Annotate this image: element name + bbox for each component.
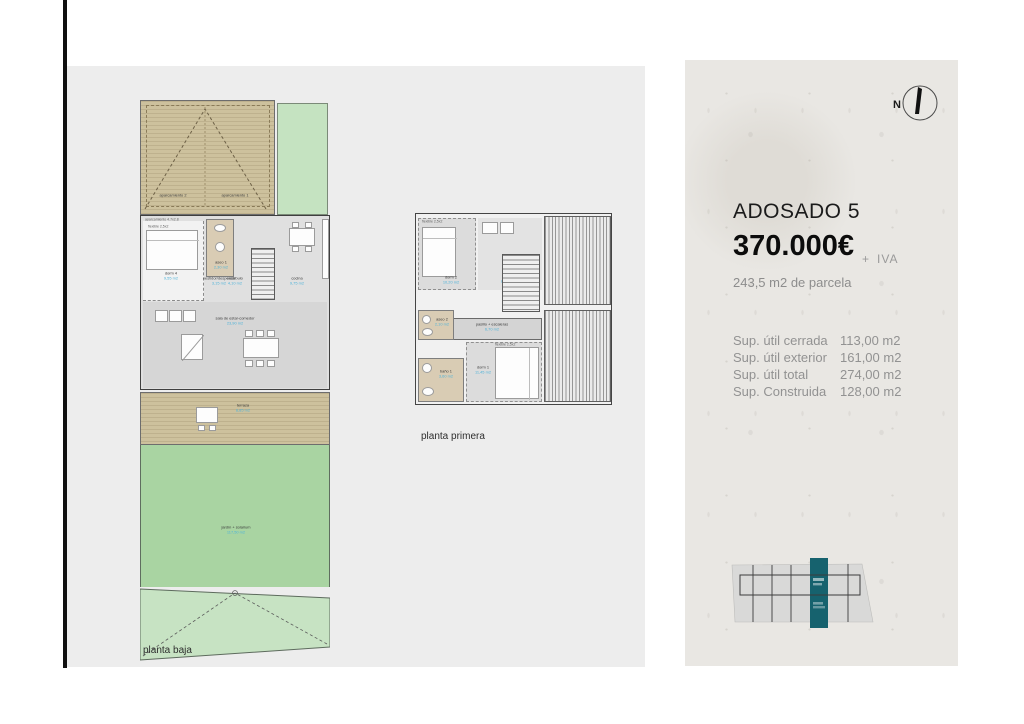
room-label-dorm4: dorm 49,55 m2	[154, 271, 188, 281]
sink	[422, 315, 431, 324]
bed	[146, 230, 198, 270]
room-dorm1: flexible 2,5x2 dorm 111,45 m2	[466, 342, 542, 402]
room-label-aseo2: aseo 22,10 m2	[434, 317, 451, 327]
room-label-aseo1: aseo 12,30 m2	[209, 260, 234, 270]
chair	[292, 222, 299, 228]
side-garden-strip	[277, 103, 328, 215]
room-label-dorm1: dorm 111,45 m2	[471, 365, 496, 375]
room-sala: sala de estar-comedor23,90 m2	[143, 302, 327, 388]
bed	[495, 347, 539, 399]
jardin-area: jardín + solarium117,50 m2	[140, 445, 330, 587]
price-plus-sign: +	[862, 252, 869, 266]
info-panel: N ADOSADO 5 370.000€ + IVA 243,5 m2 de p…	[685, 60, 958, 666]
rug	[181, 334, 203, 360]
pergola-upper	[544, 216, 611, 305]
toilet	[214, 224, 226, 232]
bed	[422, 227, 456, 277]
caption-planta-primera: planta primera	[421, 431, 485, 442]
unit-price: 370.000€	[733, 230, 854, 263]
room-label-vestibulo: vestíbulo4,10 m2	[223, 276, 248, 286]
surface-specs-table: Sup. útil cerrada 113,00 m2 Sup. útil ex…	[733, 333, 943, 401]
room-label-sala: sala de estar-comedor23,90 m2	[213, 316, 258, 326]
parcel-size: 243,5 m2 de parcela	[733, 275, 852, 290]
room-label-pasillo: pasillo + escaleras6,70 m2	[471, 322, 512, 332]
terrace-table	[196, 407, 218, 423]
spec-value: 113,00 m2	[840, 333, 900, 348]
spec-value: 274,00 m2	[840, 367, 901, 382]
bed-pillow-line	[147, 240, 199, 241]
sofa	[155, 310, 168, 322]
dining-table	[243, 338, 279, 358]
bed-annotation: flexible 2,5x2	[148, 225, 168, 229]
room-pasillo: pasillo + escaleras6,70 m2	[444, 318, 542, 340]
brochure-page: { "right_panel": { "title": "ADOSADO 5",…	[0, 0, 1024, 724]
room-label-dorm2: dorm 210,20 m2	[439, 275, 464, 285]
spec-label: Sup. útil exterior	[733, 350, 827, 365]
kitchen-table	[289, 228, 315, 246]
chair	[256, 330, 264, 337]
chair	[245, 360, 253, 367]
bed-pillow-line	[529, 348, 530, 400]
sink	[422, 363, 432, 373]
compass-north-label: N	[893, 99, 901, 111]
room-dorm2: flexible 2,5x2 dorm 210,20 m2	[418, 218, 476, 290]
sofa	[169, 310, 182, 322]
closet	[482, 222, 498, 234]
room-label-cocina: cocina9,75 m2	[282, 276, 311, 286]
chair	[198, 425, 205, 431]
room-label-jardin: jardín + solarium117,50 m2	[214, 525, 259, 535]
toilet	[422, 387, 434, 396]
chair	[209, 425, 216, 431]
sofa	[183, 310, 196, 322]
pergola-lower	[544, 310, 611, 402]
driveway-turning-lines	[141, 101, 276, 216]
room-bano1: baño 13,60 m2	[418, 358, 464, 402]
closet	[500, 222, 514, 234]
chair	[256, 360, 264, 367]
parking-spot-1-label: aparcamiento 1	[220, 193, 249, 198]
spec-row: Sup. útil exterior 161,00 m2	[733, 350, 943, 367]
site-key-plan	[725, 550, 885, 635]
stairs	[251, 248, 275, 300]
spec-row: Sup. Construida 128,00 m2	[733, 384, 943, 401]
rug-diagonal	[182, 335, 204, 361]
spec-label: Sup. Construida	[733, 384, 826, 399]
room-dorm4: flexible 2,5x2	[143, 221, 204, 301]
bed-pillow-line	[423, 238, 457, 239]
room-aseo1: aseo 12,30 m2	[206, 219, 234, 277]
chair	[305, 222, 312, 228]
sink	[215, 242, 225, 252]
stairs	[502, 254, 540, 312]
bed-annotation: flexible 2,5x2	[495, 343, 515, 347]
room-label-bano1: baño 13,60 m2	[436, 369, 455, 379]
compass-icon: N	[885, 78, 941, 130]
house-ground-floor: aparcamiento 4.7x2.8 flexible 2,5x2 dorm…	[140, 215, 330, 390]
chair	[292, 246, 299, 252]
toilet	[422, 328, 433, 336]
spec-value: 128,00 m2	[840, 384, 901, 399]
highlighted-unit	[810, 558, 828, 628]
kitchen-counter	[322, 219, 329, 279]
drawing-canvas: aparcamiento 2 aparcamiento 1 aparcamien…	[67, 66, 645, 667]
chair	[245, 330, 253, 337]
driveway-area: aparcamiento 2 aparcamiento 1	[140, 100, 275, 215]
room-label-terraza: terraza8,85 m2	[230, 403, 257, 413]
unit-title: ADOSADO 5	[733, 200, 860, 224]
parking-spot-2-label: aparcamiento 2	[158, 193, 187, 198]
spec-label: Sup. útil total	[733, 367, 808, 382]
bed-annotation: flexible 2,5x2	[422, 220, 442, 224]
price-tax-label: IVA	[877, 252, 898, 266]
spec-row: Sup. útil total 274,00 m2	[733, 367, 943, 384]
room-aseo2: aseo 22,10 m2	[418, 310, 454, 340]
floorplan-planta-baja: aparcamiento 2 aparcamiento 1 aparcamien…	[140, 100, 330, 660]
caption-planta-baja: planta baja	[143, 645, 192, 656]
chair	[305, 246, 312, 252]
spec-label: Sup. útil cerrada	[733, 333, 828, 348]
floorplan-planta-primera: flexible 2,5x2 dorm 210,20 m2 dorm 38,35…	[415, 213, 612, 405]
spec-value: 161,00 m2	[840, 350, 901, 365]
terraza-area: terraza8,85 m2	[140, 392, 330, 445]
chair	[267, 360, 275, 367]
chair	[267, 330, 275, 337]
spec-row: Sup. útil cerrada 113,00 m2	[733, 333, 943, 350]
